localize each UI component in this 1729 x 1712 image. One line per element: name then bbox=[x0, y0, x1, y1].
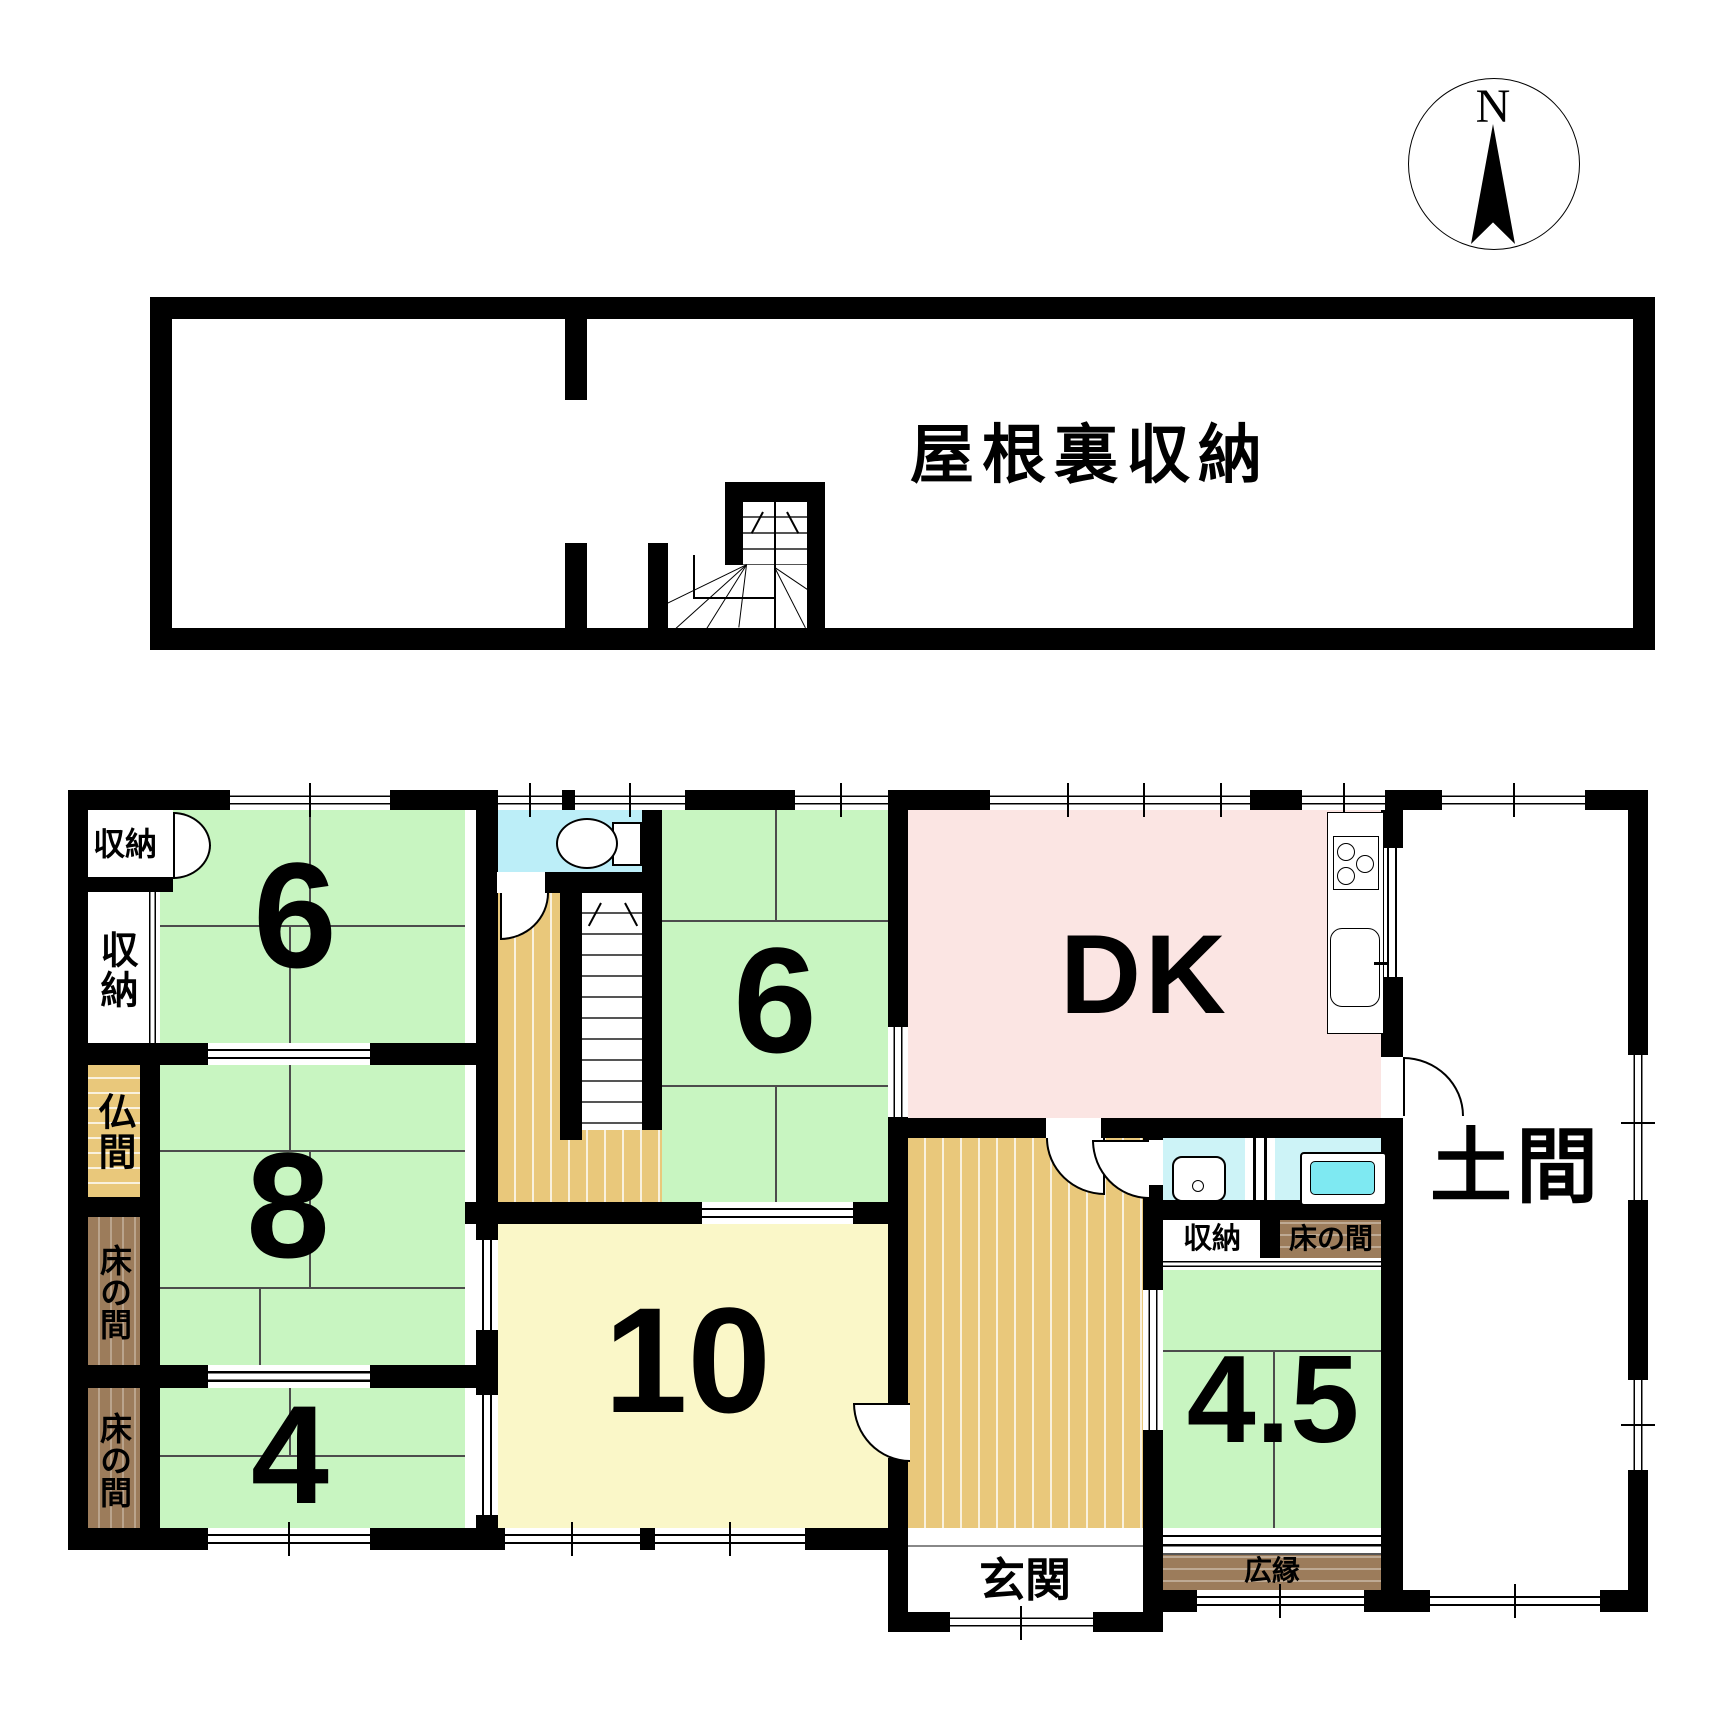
door-opening bbox=[1381, 1057, 1403, 1118]
attic-partition-upper bbox=[565, 297, 587, 400]
wall-dk-bottom bbox=[888, 1118, 1403, 1138]
tokonoma-small-label: 床の間 bbox=[1283, 1224, 1379, 1254]
window bbox=[1381, 848, 1403, 977]
room-6-left-label: 6 bbox=[230, 830, 360, 1000]
sliding-door bbox=[476, 1240, 498, 1330]
sliding-door bbox=[1163, 1258, 1381, 1270]
attic-stair-wall-top bbox=[725, 482, 825, 502]
room-10-label: 10 bbox=[580, 1275, 795, 1445]
stove-burner-icon bbox=[1337, 843, 1355, 861]
window-tick bbox=[1279, 1584, 1281, 1618]
storage-tl-label: 収納 bbox=[89, 827, 161, 861]
window-tick bbox=[1621, 1122, 1655, 1124]
attic-room-label: 屋根裏収納 bbox=[840, 420, 1340, 490]
kitchen-faucet-icon bbox=[1374, 962, 1388, 965]
window bbox=[1143, 1290, 1163, 1430]
room-45-label: 4.5 bbox=[1168, 1330, 1378, 1470]
bathtub-icon bbox=[1310, 1161, 1375, 1195]
main-wall-left bbox=[68, 790, 88, 1550]
window-tick bbox=[1067, 783, 1069, 817]
kitchen-sink-icon bbox=[1330, 928, 1380, 1007]
window-tick bbox=[1020, 1606, 1022, 1640]
toilet-bowl-icon bbox=[556, 818, 618, 869]
sliding-door bbox=[208, 1043, 370, 1065]
wall-compartment-divider bbox=[1260, 1220, 1280, 1258]
attic-wall-bottom bbox=[150, 628, 1655, 650]
window bbox=[1628, 1055, 1648, 1200]
wall-stairs-left bbox=[560, 893, 582, 1140]
window-tick bbox=[529, 783, 531, 817]
doma-label: 土間 bbox=[1430, 1125, 1602, 1210]
window-tick bbox=[1143, 783, 1145, 817]
attic-wall-right bbox=[1633, 297, 1655, 650]
tokonoma-upper-label: 床の間 bbox=[95, 1232, 133, 1352]
attic-partition-lower-b bbox=[648, 543, 668, 650]
window bbox=[990, 790, 1250, 810]
window-tick bbox=[1514, 1584, 1516, 1618]
window-tick bbox=[1220, 783, 1222, 817]
storage-small-label: 収納 bbox=[1172, 1224, 1252, 1254]
window-tick bbox=[309, 783, 311, 817]
washroom-divider-door bbox=[1245, 1138, 1275, 1200]
floor-plan: N 屋根裏収納 bbox=[0, 0, 1729, 1712]
attic-wall-left bbox=[150, 297, 172, 650]
butsuma-label: 仏間 bbox=[92, 1085, 134, 1179]
tatami-line bbox=[775, 810, 777, 920]
tatami-line bbox=[259, 1287, 261, 1365]
storage-left-label: 収納 bbox=[94, 925, 136, 1015]
attic-wall-top bbox=[150, 297, 1655, 319]
main-stairs bbox=[582, 893, 642, 1130]
room-8-label: 8 bbox=[223, 1120, 353, 1290]
washbasin-drain-icon bbox=[1192, 1180, 1204, 1192]
closet-sliding-door bbox=[145, 892, 160, 1043]
window-tick bbox=[729, 1522, 731, 1556]
window-tick bbox=[1513, 783, 1515, 817]
stove-burner-icon bbox=[1356, 855, 1374, 873]
sliding-door bbox=[702, 1202, 853, 1224]
window-tick bbox=[571, 1522, 573, 1556]
window-tick bbox=[840, 783, 842, 817]
genkan-label: 玄関 bbox=[955, 1556, 1095, 1604]
wall-stairs-right bbox=[642, 810, 662, 1130]
genkan-step-line bbox=[908, 1545, 1143, 1547]
attic-winder-edge-v bbox=[693, 555, 695, 599]
wall-left-column bbox=[140, 1063, 160, 1528]
tatami-line bbox=[775, 1085, 777, 1202]
hall-lower-floor bbox=[498, 1130, 662, 1202]
attic-stair-wall-left bbox=[725, 502, 743, 565]
room-6-mid-label: 6 bbox=[710, 915, 840, 1085]
door-opening bbox=[1046, 1118, 1101, 1138]
sliding-door bbox=[888, 1027, 908, 1117]
attic-stair-wall-right bbox=[807, 502, 825, 628]
dk-label: DK bbox=[1040, 910, 1250, 1040]
room-4-label: 4 bbox=[225, 1380, 355, 1530]
sliding-door bbox=[476, 1395, 498, 1515]
corridor-floor bbox=[908, 1138, 1143, 1528]
main-wall-right bbox=[1628, 790, 1648, 1612]
attic-winder-edge-h bbox=[693, 597, 775, 599]
window-tick bbox=[629, 783, 631, 817]
attic-partition-lower-a bbox=[565, 543, 587, 650]
door-opening bbox=[497, 872, 545, 893]
tokonoma-lower-label: 床の間 bbox=[95, 1400, 133, 1520]
window-tick bbox=[1621, 1424, 1655, 1426]
hiroen-label: 広縁 bbox=[1240, 1556, 1304, 1586]
stove-burner-icon bbox=[1337, 867, 1355, 885]
attic-stair-centerline bbox=[774, 502, 776, 628]
sliding-door bbox=[1163, 1528, 1381, 1553]
washbasin-icon bbox=[1172, 1156, 1226, 1202]
wall-closet-tl-bottom bbox=[68, 877, 173, 892]
wall-h-butsuma-tokonoma bbox=[68, 1197, 160, 1217]
